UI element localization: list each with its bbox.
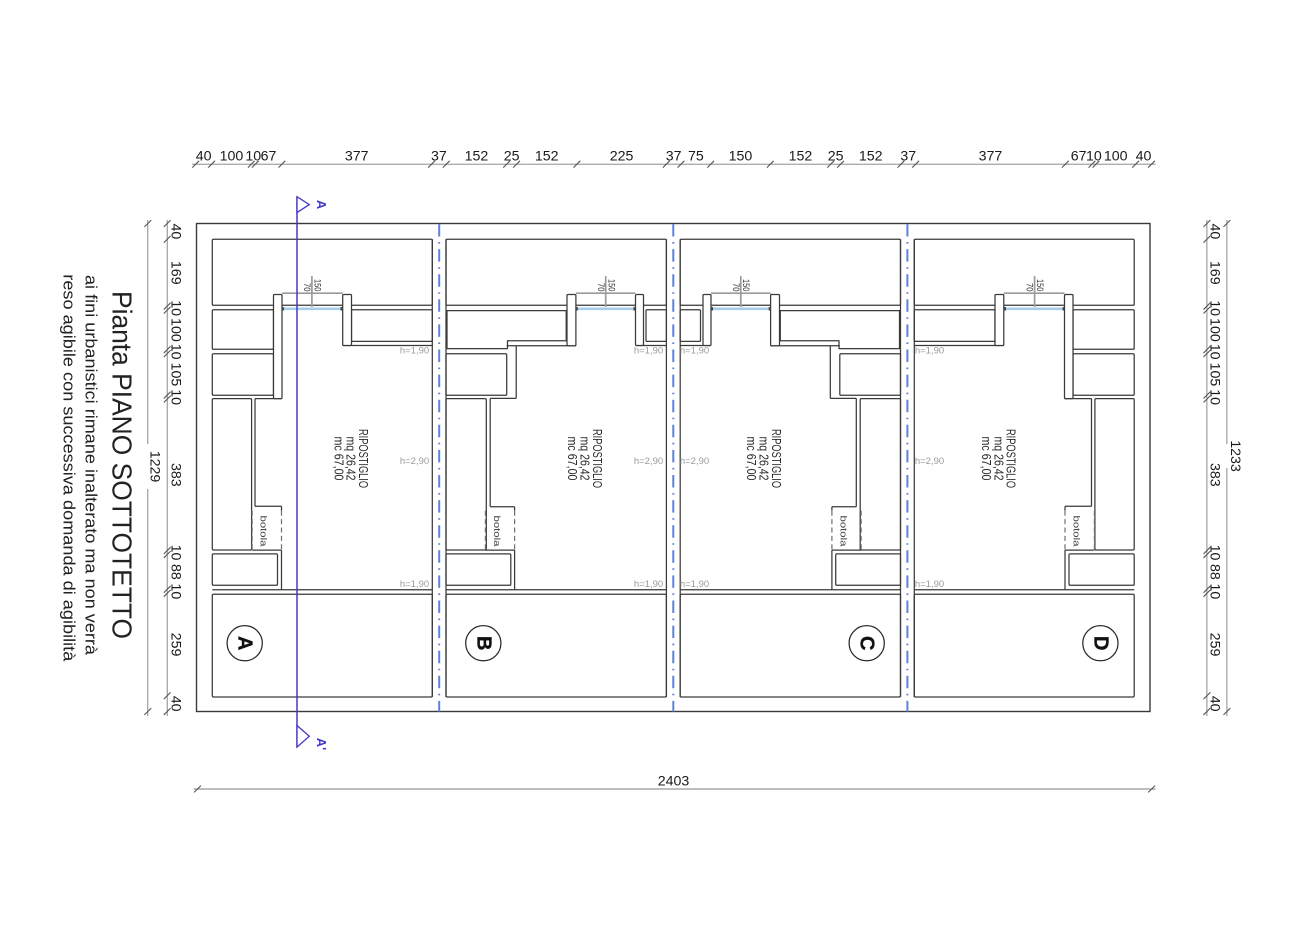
svg-text:383: 383 [167, 463, 183, 487]
svg-text:70: 70 [302, 283, 312, 292]
svg-text:C: C [856, 636, 878, 650]
svg-text:h=1,90: h=1,90 [400, 346, 429, 357]
svg-text:67: 67 [261, 149, 277, 165]
svg-text:10: 10 [1086, 149, 1102, 165]
svg-text:10: 10 [167, 344, 183, 360]
svg-text:A: A [314, 200, 329, 210]
svg-text:105: 105 [167, 363, 183, 387]
svg-text:A: A [234, 636, 256, 650]
svg-text:40: 40 [167, 696, 183, 712]
svg-text:37: 37 [666, 149, 682, 165]
svg-text:152: 152 [535, 149, 559, 165]
svg-text:2403: 2403 [658, 773, 690, 789]
svg-text:105: 105 [1207, 363, 1223, 387]
svg-text:10: 10 [245, 149, 261, 165]
svg-text:mc 67,00: mc 67,00 [979, 437, 993, 481]
svg-text:h=1,90: h=1,90 [634, 579, 663, 590]
svg-text:1233: 1233 [1227, 440, 1243, 472]
svg-text:383: 383 [1207, 463, 1223, 487]
svg-text:10: 10 [1207, 300, 1223, 316]
svg-text:10: 10 [1207, 344, 1223, 360]
svg-text:reso agibile con successiva do: reso agibile con successiva domanda di a… [60, 274, 79, 662]
svg-text:h=2,90: h=2,90 [915, 456, 944, 467]
svg-text:152: 152 [465, 149, 489, 165]
svg-text:botola: botola [259, 516, 269, 548]
svg-text:150: 150 [606, 279, 616, 292]
svg-text:100: 100 [1104, 149, 1128, 165]
svg-text:152: 152 [789, 149, 813, 165]
svg-text:70: 70 [596, 283, 606, 292]
svg-text:10: 10 [167, 389, 183, 405]
svg-text:152: 152 [859, 149, 883, 165]
svg-text:h=1,90: h=1,90 [680, 346, 709, 357]
svg-text:150: 150 [1035, 279, 1045, 292]
svg-text:75: 75 [688, 149, 704, 165]
svg-text:10: 10 [167, 583, 183, 599]
svg-text:h=1,90: h=1,90 [400, 579, 429, 590]
svg-text:40: 40 [167, 224, 183, 240]
svg-text:259: 259 [167, 633, 183, 657]
svg-text:150: 150 [741, 279, 751, 292]
svg-text:h=2,90: h=2,90 [680, 456, 709, 467]
svg-text:1229: 1229 [146, 451, 162, 483]
svg-text:mc 67,00: mc 67,00 [744, 437, 758, 481]
svg-text:ai fini urbanistici rimane ina: ai fini urbanistici rimane inalterato ma… [81, 275, 100, 656]
svg-text:h=1,90: h=1,90 [634, 346, 663, 357]
svg-text:100: 100 [1207, 318, 1223, 342]
svg-text:h=1,90: h=1,90 [915, 346, 944, 357]
svg-text:25: 25 [504, 149, 520, 165]
svg-text:B: B [472, 636, 494, 650]
svg-text:h=2,90: h=2,90 [400, 456, 429, 467]
svg-text:37: 37 [431, 149, 447, 165]
svg-text:150: 150 [312, 279, 322, 292]
svg-text:h=1,90: h=1,90 [680, 579, 709, 590]
svg-text:40: 40 [1136, 149, 1152, 165]
svg-text:Pianta PIANO SOTTOTETTO: Pianta PIANO SOTTOTETTO [107, 291, 138, 639]
svg-text:100: 100 [167, 318, 183, 342]
svg-text:D: D [1089, 636, 1111, 650]
svg-text:88: 88 [167, 564, 183, 580]
svg-text:10: 10 [167, 300, 183, 316]
svg-text:h=2,90: h=2,90 [634, 456, 663, 467]
svg-text:88: 88 [1207, 564, 1223, 580]
svg-text:botola: botola [492, 516, 502, 548]
svg-text:40: 40 [1207, 696, 1223, 712]
svg-text:67: 67 [1071, 149, 1087, 165]
svg-text:169: 169 [167, 261, 183, 285]
svg-text:169: 169 [1207, 261, 1223, 285]
svg-text:70: 70 [731, 283, 741, 292]
svg-text:A': A' [314, 738, 329, 750]
svg-text:h=1,90: h=1,90 [915, 579, 944, 590]
svg-text:225: 225 [610, 149, 634, 165]
svg-text:377: 377 [979, 149, 1003, 165]
svg-text:70: 70 [1025, 283, 1035, 292]
svg-text:259: 259 [1207, 633, 1223, 657]
svg-text:40: 40 [196, 149, 212, 165]
svg-text:mc 67,00: mc 67,00 [331, 437, 345, 481]
svg-text:10: 10 [1207, 583, 1223, 599]
svg-text:100: 100 [220, 149, 244, 165]
svg-text:150: 150 [729, 149, 753, 165]
svg-text:377: 377 [345, 149, 369, 165]
svg-text:mc 67,00: mc 67,00 [565, 437, 579, 481]
svg-text:10: 10 [167, 545, 183, 561]
svg-text:botola: botola [1072, 516, 1082, 548]
svg-text:10: 10 [1207, 545, 1223, 561]
svg-text:37: 37 [900, 149, 916, 165]
svg-text:25: 25 [828, 149, 844, 165]
svg-text:40: 40 [1207, 224, 1223, 240]
svg-text:10: 10 [1207, 389, 1223, 405]
svg-text:botola: botola [838, 516, 848, 548]
